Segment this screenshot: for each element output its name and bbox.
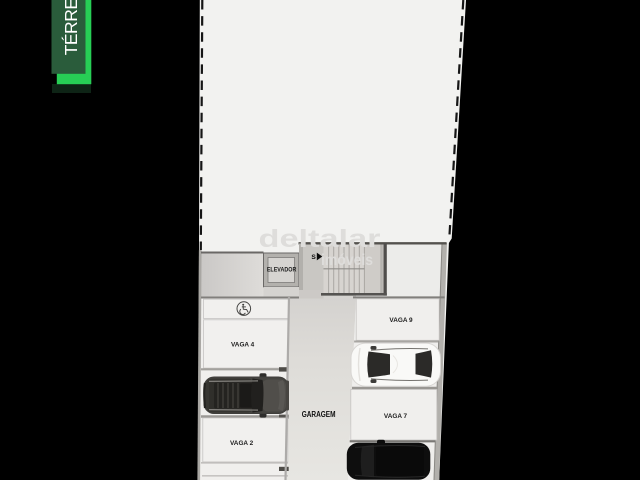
svg-text:TÉRREO: TÉRREO bbox=[61, 0, 81, 55]
svg-text:VAGA 9: VAGA 9 bbox=[389, 317, 413, 324]
svg-text:deltalar: deltalar bbox=[259, 225, 381, 253]
svg-text:VAGA 2: VAGA 2 bbox=[230, 440, 254, 447]
svg-text:S: S bbox=[311, 254, 316, 261]
svg-text:VAGA 7: VAGA 7 bbox=[384, 413, 408, 420]
svg-text:GARAGEM: GARAGEM bbox=[302, 410, 336, 419]
svg-text:imóveis: imóveis bbox=[321, 252, 373, 269]
svg-text:VAGA 4: VAGA 4 bbox=[231, 342, 255, 349]
svg-text:ELEVADOR: ELEVADOR bbox=[267, 267, 297, 274]
